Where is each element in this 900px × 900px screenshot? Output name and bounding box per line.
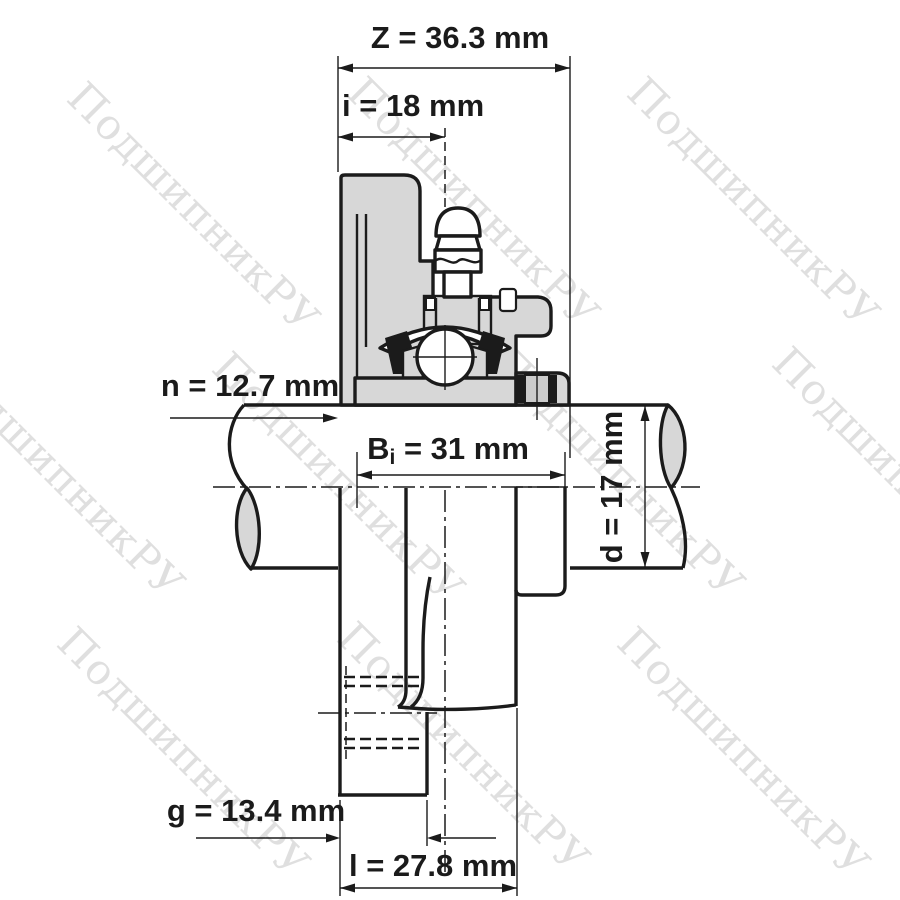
watermark: ПодшипникРУ [58,72,329,343]
dim-l-arrow-right [502,884,517,893]
dim-Z-arrow-right [555,64,570,73]
dim-Bi-suffix: = 31 mm [395,431,529,466]
shaft-break-right-lens [660,405,685,488]
watermark: ПодшипникРУ [608,617,879,888]
locking-collar-bottom [516,487,565,595]
dim-Bi-arrow-right [550,471,565,480]
dim-d-label: d = 17 mm [594,411,629,564]
dim-Z: Z = 36.3 mm [338,20,570,73]
boss-thread-notch-left [426,298,435,310]
dim-Z-arrow-left [338,64,353,73]
grease-nipple-dome [436,208,480,236]
dim-d-arrow-bottom [641,552,650,567]
dim-n-label: n = 12.7 mm [161,368,339,403]
set-screw-right-edge [549,375,557,403]
bearing-drawing-canvas: ПодшипникРУ ПодшипникРУ ПодшипникРУ Подш… [0,0,900,900]
watermark-layer: ПодшипникРУ ПодшипникРУ ПодшипникРУ Подш… [0,67,900,888]
dim-i-arrow-left [338,133,353,142]
dim-Bi: Bi = 31 mm [357,431,565,480]
dim-l: l = 27.8 mm [340,848,517,893]
dim-l-arrow-left [340,884,355,893]
dim-g-arrow-left [326,834,340,843]
watermark: ПодшипникРУ [763,337,900,608]
grease-nipple-shank [444,272,471,297]
grease-nipple-flare [436,236,480,250]
dim-i-label: i = 18 mm [342,88,484,123]
dim-n-arrow [323,414,338,423]
technical-drawing: ПодшипникРУ ПодшипникРУ ПодшипникРУ Подш… [0,0,900,900]
dim-g-arrow-right [427,834,441,843]
boss-thread-notch-right [480,298,489,310]
housing-recess-right [500,289,516,311]
dim-Z-label: Z = 36.3 mm [371,20,549,55]
set-screw-left-edge [517,375,525,403]
dim-l-label: l = 27.8 mm [349,848,517,883]
watermark: ПодшипникРУ [48,617,319,888]
grease-nipple [435,208,481,297]
dim-Bi-prefix: B [367,431,389,466]
watermark: ПодшипникРУ [618,67,889,338]
dim-Bi-label: Bi = 31 mm [367,431,529,469]
dim-g: g = 13.4 mm [167,793,496,843]
shaft-break-left-lens [237,488,260,569]
dim-d-arrow-top [641,406,650,421]
dim-g-label: g = 13.4 mm [167,793,345,828]
